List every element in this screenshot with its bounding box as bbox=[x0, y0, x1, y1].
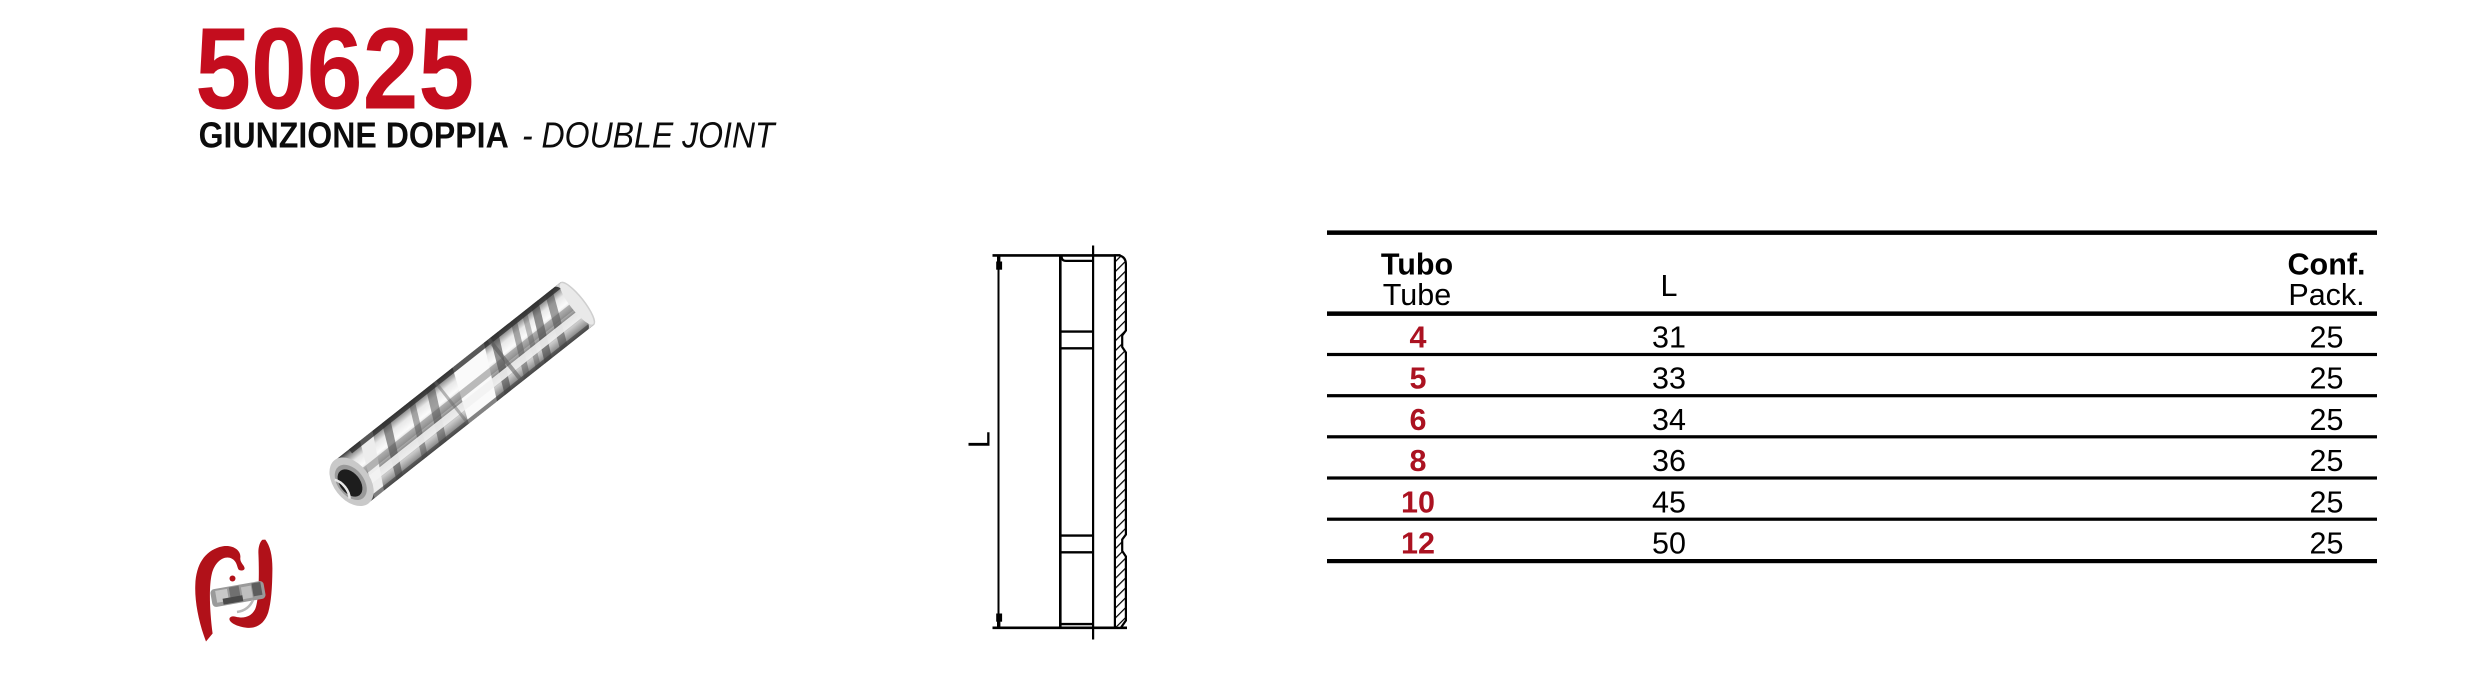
svg-text:50: 50 bbox=[1652, 527, 1686, 561]
svg-text:- DOUBLE JOINT: - DOUBLE JOINT bbox=[522, 116, 777, 156]
svg-text:25: 25 bbox=[2310, 362, 2344, 396]
svg-text:L: L bbox=[963, 431, 997, 448]
svg-text:Tube: Tube bbox=[1383, 278, 1451, 312]
svg-text:Pack.: Pack. bbox=[2288, 278, 2364, 312]
svg-text:5: 5 bbox=[1410, 362, 1427, 396]
svg-text:4: 4 bbox=[1410, 321, 1427, 355]
svg-text:33: 33 bbox=[1652, 362, 1686, 396]
svg-text:45: 45 bbox=[1652, 485, 1686, 519]
svg-text:10: 10 bbox=[1401, 485, 1435, 519]
svg-text:12: 12 bbox=[1401, 527, 1435, 561]
svg-text:25: 25 bbox=[2310, 485, 2344, 519]
svg-text:GIUNZIONE DOPPIA: GIUNZIONE DOPPIA bbox=[199, 116, 509, 156]
svg-text:25: 25 bbox=[2310, 444, 2344, 478]
svg-text:36: 36 bbox=[1652, 444, 1686, 478]
svg-text:31: 31 bbox=[1652, 321, 1686, 355]
svg-text:Conf.: Conf. bbox=[2288, 248, 2366, 282]
svg-text:25: 25 bbox=[2310, 403, 2344, 437]
svg-text:34: 34 bbox=[1652, 403, 1686, 437]
svg-text:L: L bbox=[1661, 269, 1678, 303]
svg-text:Tubo: Tubo bbox=[1381, 248, 1453, 282]
svg-text:50625: 50625 bbox=[195, 4, 474, 133]
svg-text:25: 25 bbox=[2310, 527, 2344, 561]
svg-text:6: 6 bbox=[1410, 403, 1427, 437]
svg-text:25: 25 bbox=[2310, 321, 2344, 355]
svg-text:8: 8 bbox=[1410, 444, 1427, 478]
